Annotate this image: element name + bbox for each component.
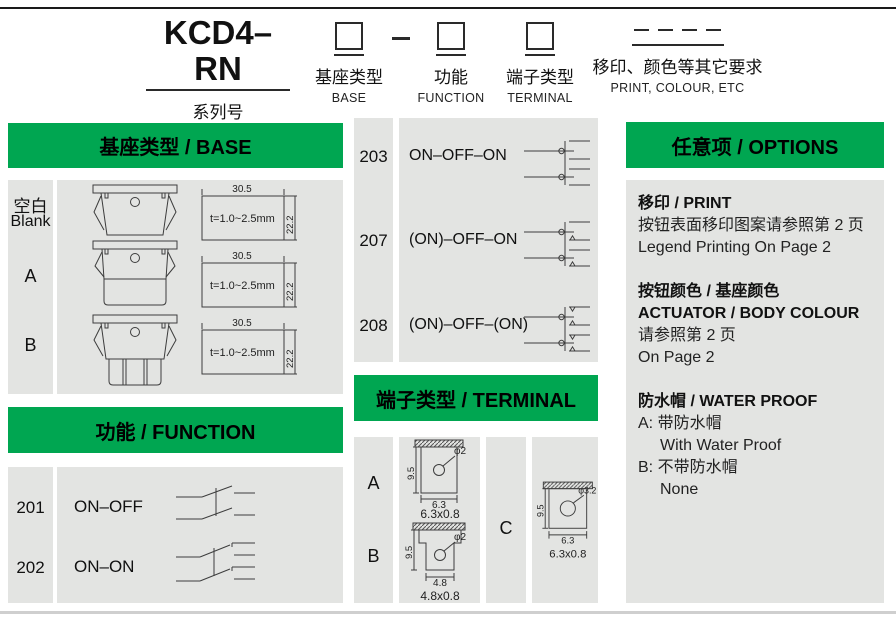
field-series: KCD4–RN 系列号 SERIES [146,15,290,140]
switch-drawing-blank [91,183,179,239]
cutout-drawing-a: 30.5 22.2 t=1.0~2.5mm [198,250,300,312]
options-waterproof-b-en: None [638,479,876,501]
options-waterproof-a-en: With Water Proof [638,435,876,457]
field-terminal: 端子类型 TERMINAL [498,22,582,105]
function-label-201: ON–OFF [74,497,143,517]
switch-drawing-a [91,239,179,309]
print-label-en: PRINT, COLOUR, ETC [590,81,765,95]
function-code-202: 202 [8,558,53,578]
terminal-drawing-c: 9.5 φ3.2 6.3 6.3x0.8 [532,481,598,568]
series-code: KCD4–RN [146,15,290,87]
terminal-label-cn: 端子类型 [498,63,582,88]
terminal-underline [525,54,555,56]
function-label-203: ON–OFF–ON [409,147,507,165]
section-header-base: 基座类型 / BASE [8,123,343,168]
options-colour-block: 按钮颜色 / 基座颜色 ACTUATOR / BODY COLOUR 请参照第 … [638,281,876,369]
cutout-thickness: t=1.0~2.5mm [210,280,275,292]
function-underline [436,54,466,56]
field-base: 基座类型 BASE [307,22,391,105]
options-print-block: 移印 / PRINT 按钮表面移印图案请参照第 2 页 Legend Print… [638,193,876,259]
function-label-202: ON–ON [74,557,134,577]
field-print-options: 移印、颜色等其它要求 PRINT, COLOUR, ETC [590,22,765,95]
terminal-label-a: A [354,473,393,494]
terminal-c-width-dim: 6.3 [561,534,574,545]
base-row-a-label: A [8,266,53,287]
terminal-c-hole-dim: φ3.2 [578,485,596,495]
function-code-labels: 201 202 [8,467,53,603]
cutout-height-dim: 22.2 [285,350,296,369]
function-label-207: (ON)–OFF–ON [409,231,517,249]
terminal-a-caption: 6.3x0.8 [420,507,460,519]
code-separator-dash [392,37,410,40]
options-colour-title-en: ACTUATOR / BODY COLOUR [638,303,876,325]
cutout-height-dim: 22.2 [285,283,296,302]
function-label-en: FUNCTION [409,91,493,105]
circuit-symbol-208 [524,299,592,357]
terminal-label-en: TERMINAL [498,91,582,105]
terminal-c-caption: 6.3x0.8 [549,549,586,561]
circuit-symbol-202 [175,539,257,589]
circuit-symbol-201 [175,483,257,527]
cutout-height-dim: 22.2 [285,216,296,235]
base-label-en: BASE [307,91,391,105]
cutout-thickness: t=1.0~2.5mm [210,213,275,225]
field-function: 功能 FUNCTION [409,22,493,105]
print-placeholder-dashes [590,24,765,36]
terminal-b-height-dim: 9.5 [404,546,415,559]
terminal-drawing-a: 9.5 φ2 6.3 6.3x0.8 [402,439,478,519]
options-print-line-en: Legend Printing On Page 2 [638,237,876,259]
top-divider [0,7,896,9]
cutout-drawing-b: 30.5 22.2 t=1.0~2.5mm [198,317,300,379]
terminal-a-height-dim: 9.5 [406,467,417,480]
terminal-section-title: 端子类型 / TERMINAL [376,384,576,413]
function-code-box [437,22,465,50]
series-label-cn: 系列号 [146,98,290,123]
terminal-drawing-b: 9.5 φ2 4.8 4.8x0.8 [402,522,478,602]
terminal-b-width-dim: 4.8 [433,578,447,589]
function-rows-panel: ON–OFF ON–ON [57,467,343,603]
base-underline [334,54,364,56]
function-code-201: 201 [8,498,53,518]
terminal-ab-panel: 9.5 φ2 6.3 6.3x0.8 9.5 φ2 [399,437,480,603]
function-code-207: 207 [354,231,393,251]
options-waterproof-a: A: 带防水帽 [638,413,876,435]
function-code-208: 208 [354,316,393,336]
terminal-b-caption: 4.8x0.8 [420,589,460,602]
options-print-title: 移印 / PRINT [638,193,876,215]
options-waterproof-title: 防水帽 / WATER PROOF [638,391,876,413]
options-panel: 移印 / PRINT 按钮表面移印图案请参照第 2 页 Legend Print… [626,180,884,603]
options-colour-line-en: On Page 2 [638,347,876,369]
section-header-terminal: 端子类型 / TERMINAL [354,375,598,421]
function-code-labels-mid: 203 207 208 [354,118,393,362]
base-row-blank-en: Blank [8,213,53,231]
switch-drawing-b [91,313,179,387]
terminal-b-hole-dim: φ2 [454,532,466,543]
section-header-options: 任意项 / OPTIONS [626,122,884,168]
base-row-b-label: B [8,335,53,356]
function-code-203: 203 [354,147,393,167]
cutout-width-dim: 30.5 [232,318,252,329]
function-rows-panel-mid: ON–OFF–ON (ON)–OFF–ON (ON)–OFF–(ON) [399,118,598,362]
options-waterproof-block: 防水帽 / WATER PROOF A: 带防水帽 With Water Pro… [638,391,876,501]
base-section-title: 基座类型 / BASE [99,131,251,160]
base-label-cn: 基座类型 [307,63,391,88]
terminal-c-panel: 9.5 φ3.2 6.3 6.3x0.8 [532,437,598,603]
cutout-drawing-blank: 30.5 22.2 t=1.0~2.5mm [198,183,300,245]
series-underline [146,89,290,91]
cutout-width-dim: 30.5 [232,251,252,262]
options-waterproof-b: B: 不带防水帽 [638,457,876,479]
base-row-labels: 空白 Blank A B [8,180,53,394]
options-section-title: 任意项 / OPTIONS [672,131,839,160]
section-header-function: 功能 / FUNCTION [8,407,343,453]
terminal-code-box [526,22,554,50]
terminal-label-b: B [354,546,393,567]
function-section-title: 功能 / FUNCTION [96,416,256,445]
terminal-label-c: C [486,518,526,539]
options-colour-title-cn: 按钮颜色 / 基座颜色 [638,281,876,303]
print-label-cn: 移印、颜色等其它要求 [590,53,765,78]
terminal-a-hole-dim: φ2 [454,446,466,457]
circuit-symbol-207 [524,214,592,272]
cutout-width-dim: 30.5 [232,184,252,195]
terminal-c-height-dim: 9.5 [535,505,545,517]
options-print-line-cn: 按钮表面移印图案请参照第 2 页 [638,215,876,237]
datasheet-page: KCD4–RN 系列号 SERIES 基座类型 BASE 功能 FUNCTION… [0,0,896,617]
function-label-cn: 功能 [409,63,493,88]
base-drawings-panel: 30.5 22.2 t=1.0~2.5mm 30.5 22.2 t=1.0~2.… [57,180,343,394]
terminal-ab-labels: A B [354,437,393,603]
bottom-divider [0,611,896,614]
print-underline [632,44,724,46]
terminal-c-label-col: C [486,437,526,603]
options-colour-line-cn: 请参照第 2 页 [638,325,876,347]
circuit-symbol-203 [524,133,592,191]
cutout-thickness: t=1.0~2.5mm [210,347,275,359]
function-label-208: (ON)–OFF–(ON) [409,316,528,334]
base-code-box [335,22,363,50]
